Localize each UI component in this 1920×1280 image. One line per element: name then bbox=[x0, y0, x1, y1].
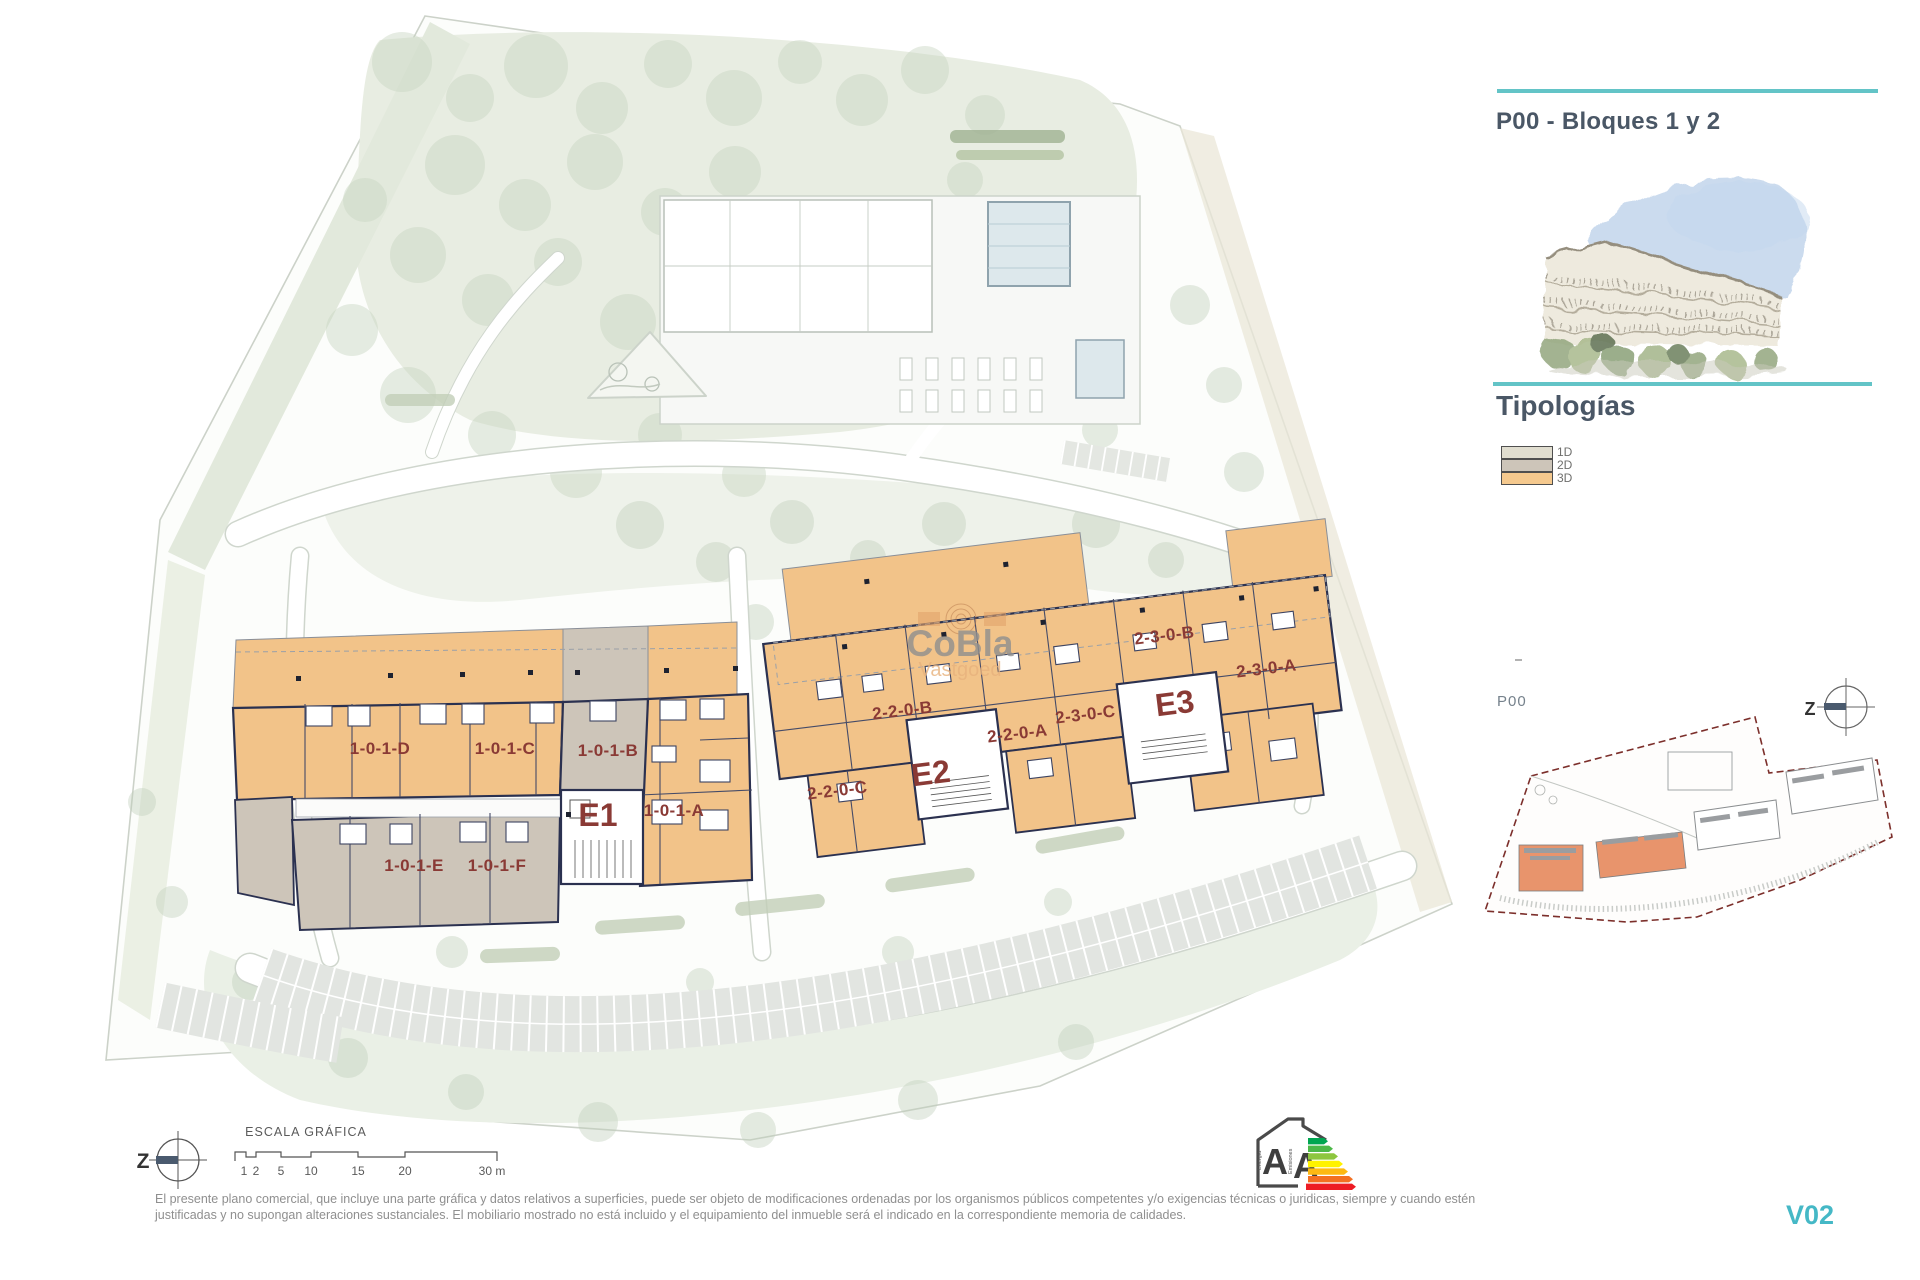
plan-sheet: CoBla Vastgoed 1-0-1-D 1-0-1-C 1-0-1-B 1… bbox=[0, 0, 1920, 1280]
north-compass: Z bbox=[137, 1131, 207, 1189]
panel-mid-rule bbox=[1493, 382, 1872, 386]
legend-label-1d: 1D bbox=[1557, 445, 1572, 459]
panel-top-rule bbox=[1497, 89, 1878, 93]
energy-arrows bbox=[1306, 1138, 1356, 1190]
core-label-e3: E3 bbox=[1153, 683, 1196, 724]
legend-row-3d: 3D bbox=[1501, 472, 1572, 485]
scale-tick: 1 bbox=[241, 1164, 248, 1178]
scale-tick: 30 m bbox=[479, 1164, 506, 1178]
core-label-e1: E1 bbox=[578, 797, 617, 833]
legend-swatch-2d bbox=[1501, 459, 1553, 472]
unit-label: 1-0-1-A bbox=[644, 801, 704, 820]
unit-label: 1-0-1-E bbox=[384, 856, 444, 875]
energy-axis-energia: Energía bbox=[1257, 1150, 1263, 1170]
key-plan-compass: Z bbox=[1805, 678, 1876, 736]
unit-label: 1-0-1-B bbox=[578, 741, 638, 760]
scale-bar-title: ESCALA GRÁFICA bbox=[245, 1124, 367, 1139]
energy-letter-a1: A bbox=[1262, 1141, 1288, 1182]
legend-label-3d: 3D bbox=[1557, 471, 1572, 485]
unit-label: 1-0-1-C bbox=[475, 739, 535, 758]
scale-tick: 20 bbox=[398, 1164, 412, 1178]
north-letter: Z bbox=[137, 1150, 150, 1173]
core-label-e2: E2 bbox=[909, 753, 952, 794]
scale-tick: 10 bbox=[304, 1164, 318, 1178]
energy-axis-emisiones: Emisiones bbox=[1288, 1148, 1294, 1174]
key-plan-north-letter: Z bbox=[1805, 699, 1816, 719]
scale-tick: 15 bbox=[351, 1164, 365, 1178]
energy-rating-icon: A A Energía Emisiones bbox=[1257, 1119, 1356, 1190]
page-title: P00 - Bloques 1 y 2 bbox=[1496, 108, 1720, 136]
version-label: V02 bbox=[1786, 1200, 1834, 1231]
legend-swatch-1d bbox=[1501, 446, 1553, 459]
unit-label: 1-0-1-D bbox=[350, 739, 410, 758]
unit-label: 1-0-1-F bbox=[468, 856, 527, 875]
watermark-brand: CoBla bbox=[907, 623, 1014, 664]
swimming-pool bbox=[988, 202, 1070, 286]
building-e1 bbox=[233, 622, 752, 930]
key-plan-floor-label: P00 bbox=[1497, 693, 1527, 710]
site-plan-drawing: CoBla Vastgoed 1-0-1-D 1-0-1-C 1-0-1-B 1… bbox=[0, 0, 1920, 1280]
legend-label-2d: 2D bbox=[1557, 458, 1572, 472]
typologies-legend: 1D 2D 3D bbox=[1501, 446, 1572, 485]
scale-bar: ESCALA GRÁFICA 1 2 5 10 15 20 30 m bbox=[235, 1124, 505, 1178]
key-plan: P00 Z bbox=[1485, 660, 1892, 922]
legal-disclaimer: El presente plano comercial, que incluye… bbox=[155, 1192, 1500, 1223]
scale-tick: 2 bbox=[253, 1164, 260, 1178]
typologies-heading: Tipologías bbox=[1496, 390, 1636, 422]
building-rendering bbox=[1542, 178, 1808, 378]
scale-tick: 5 bbox=[278, 1164, 285, 1178]
legend-swatch-3d bbox=[1501, 472, 1553, 485]
watermark-sub: Vastgoed bbox=[918, 659, 1001, 681]
